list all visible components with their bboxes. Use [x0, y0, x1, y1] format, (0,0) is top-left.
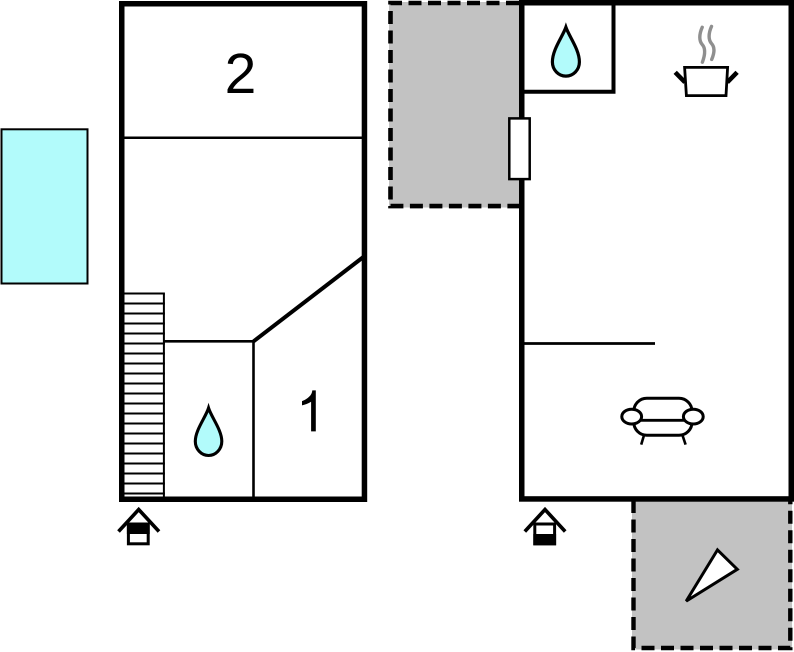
svg-text:2: 2: [225, 42, 257, 106]
